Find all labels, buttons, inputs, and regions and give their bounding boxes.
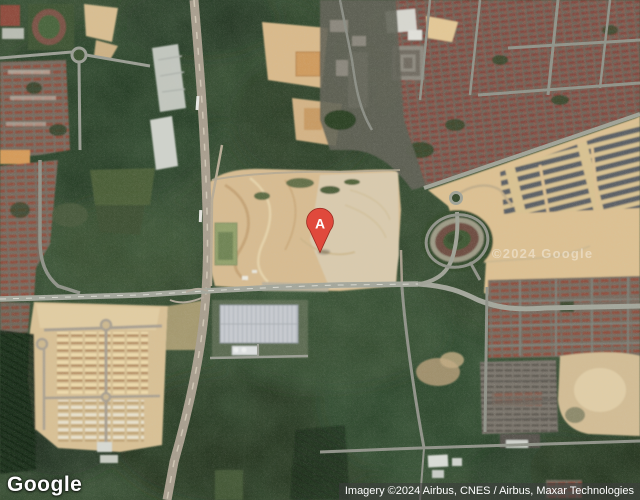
- google-logo[interactable]: Google: [7, 473, 82, 497]
- map-canvas[interactable]: A ©2024 Google Google Imagery ©2024 Airb…: [0, 0, 640, 500]
- attribution: Imagery ©2024 Airbus, CNES / Airbus, Max…: [339, 483, 640, 500]
- satellite-imagery[interactable]: A: [0, 0, 640, 500]
- marker-label: A: [315, 216, 325, 232]
